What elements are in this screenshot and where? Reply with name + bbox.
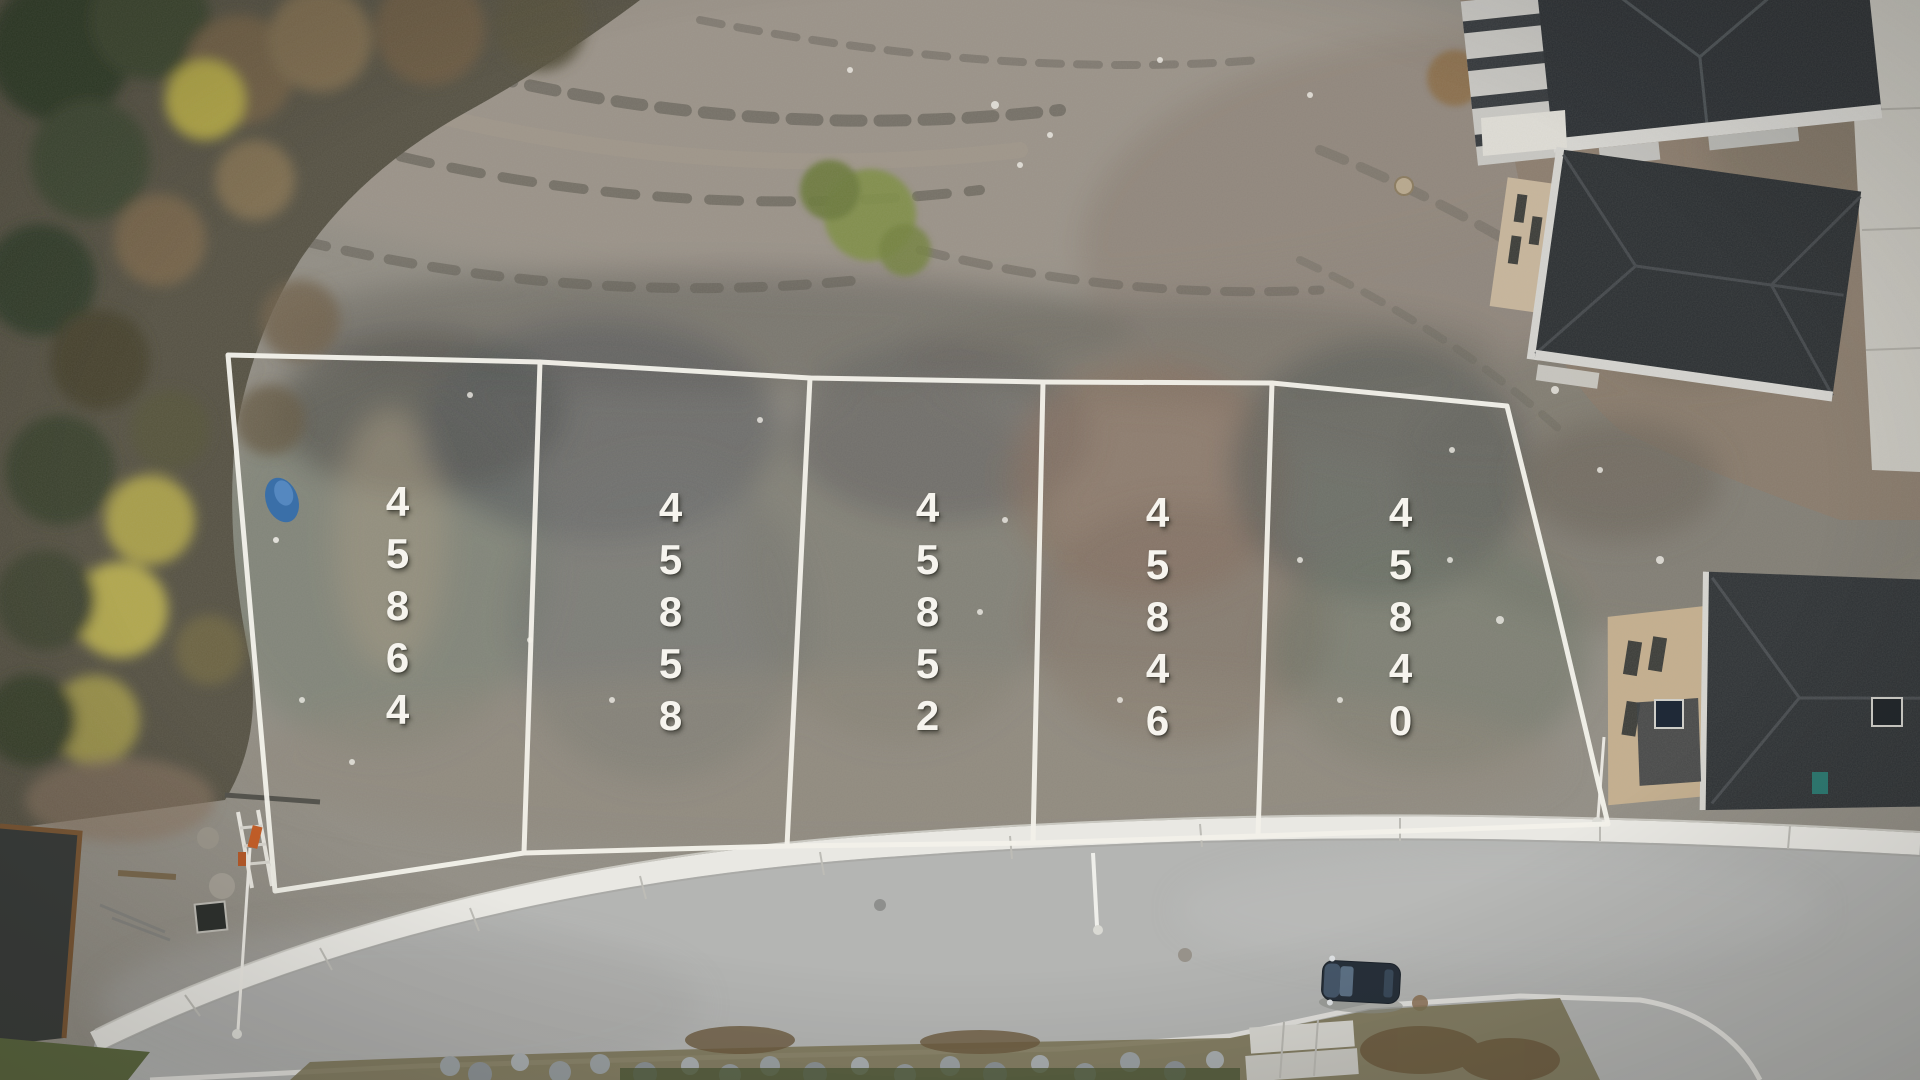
- aerial-photo-canvas: [0, 0, 1920, 1080]
- lot-number-5: 45840: [1379, 489, 1421, 749]
- lot-number-2: 45858: [649, 484, 691, 744]
- lot-number-4: 45846: [1136, 489, 1178, 749]
- lot-number-1: 45864: [376, 478, 418, 738]
- aerial-photo: 45864 45858 45852 45846 45840: [0, 0, 1920, 1080]
- lot-number-3: 45852: [906, 484, 948, 744]
- vignette: [0, 0, 1920, 1080]
